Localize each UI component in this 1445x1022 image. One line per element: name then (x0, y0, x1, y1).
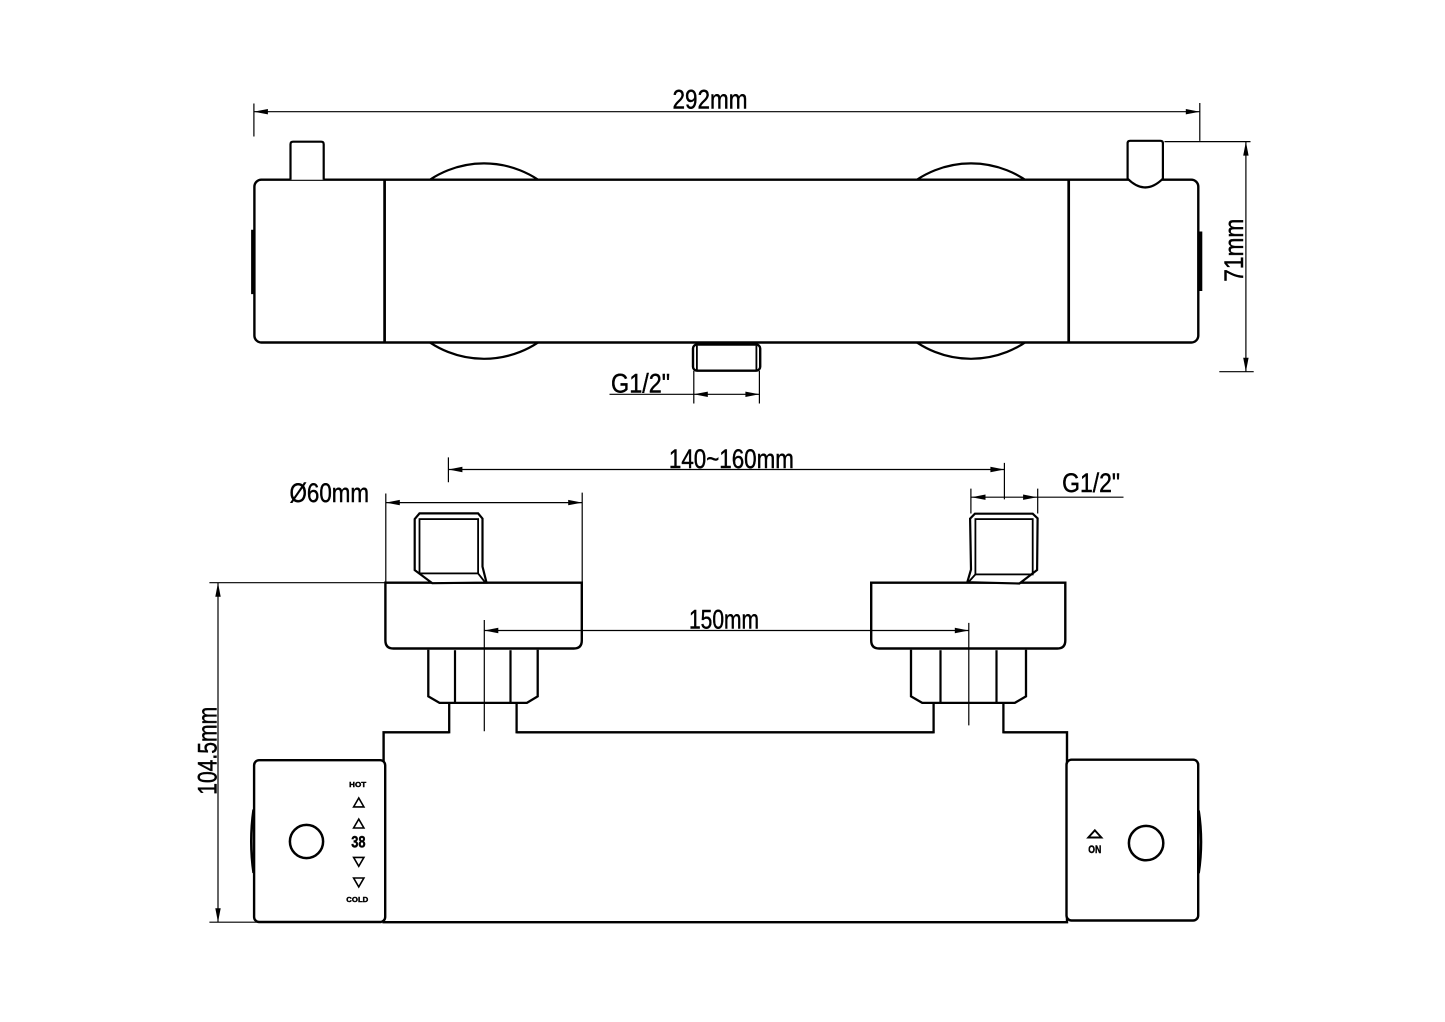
svg-text:ON: ON (1088, 844, 1101, 856)
svg-text:150mm: 150mm (689, 604, 759, 634)
svg-text:HOT: HOT (349, 780, 366, 789)
svg-text:G1/2": G1/2" (611, 368, 670, 398)
svg-text:38: 38 (351, 833, 365, 851)
svg-text:71mm: 71mm (1219, 219, 1249, 282)
svg-text:G1/2": G1/2" (1062, 468, 1120, 498)
svg-text:Ø60mm: Ø60mm (290, 478, 370, 508)
svg-text:140~160mm: 140~160mm (669, 444, 794, 474)
svg-text:104.5mm: 104.5mm (193, 707, 223, 795)
svg-text:COLD: COLD (346, 895, 369, 904)
svg-text:292mm: 292mm (673, 85, 748, 115)
